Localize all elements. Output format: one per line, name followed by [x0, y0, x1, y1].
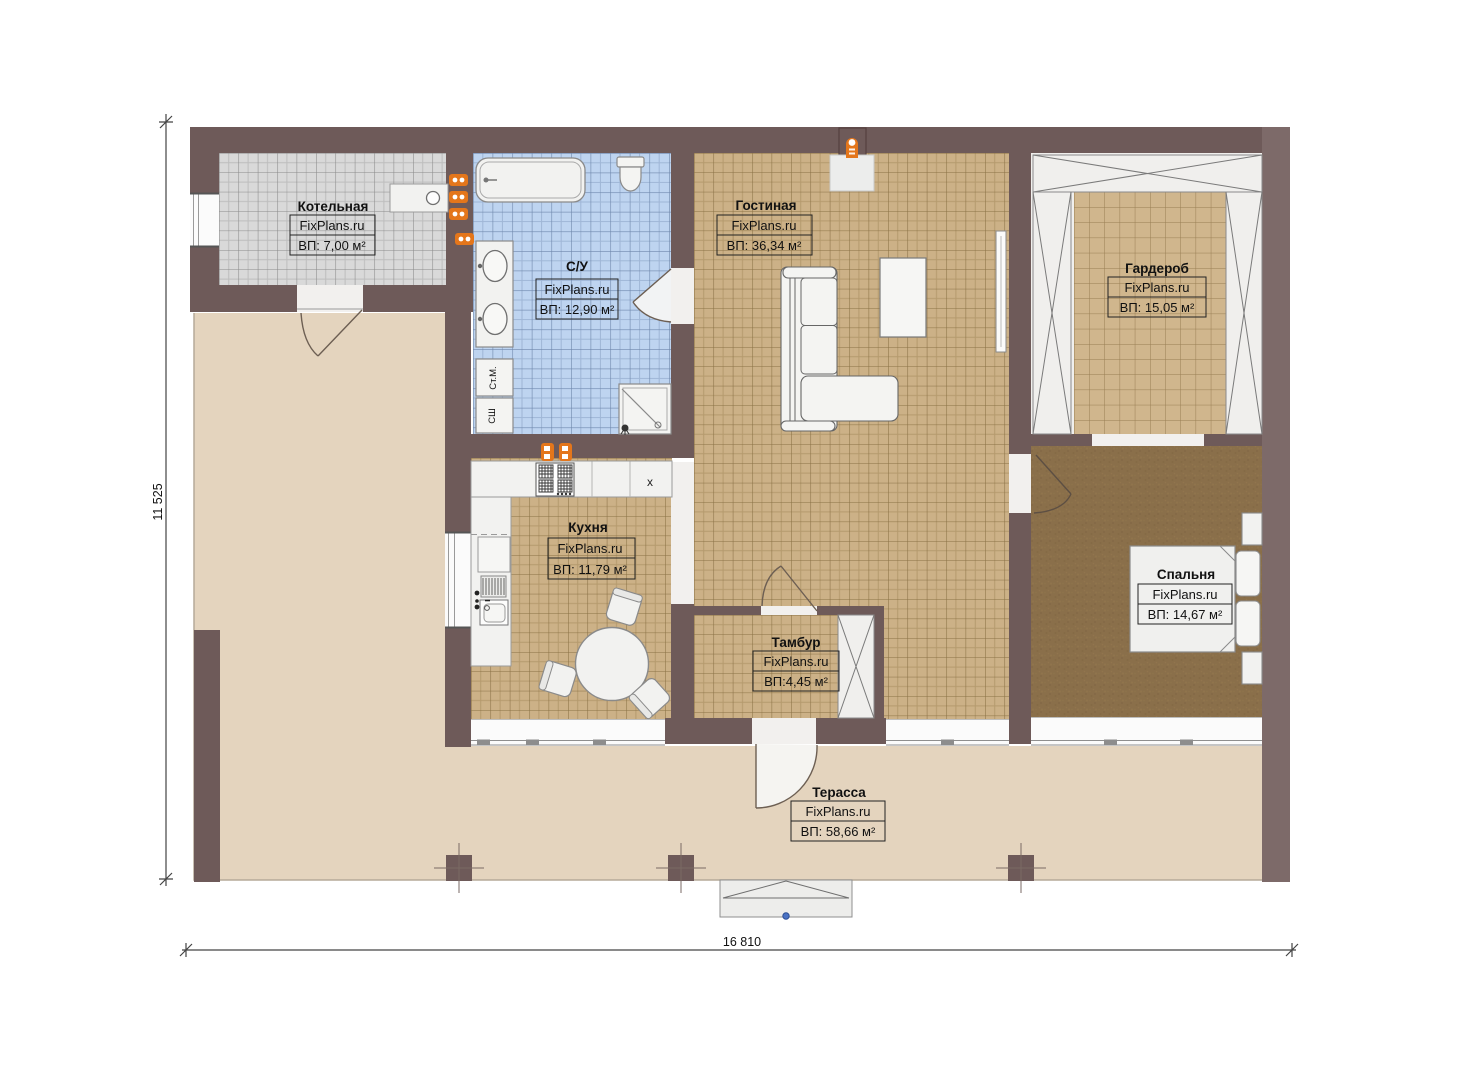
svg-text:ВП: 14,67 м²: ВП: 14,67 м²: [1148, 607, 1223, 622]
svg-text:11 525: 11 525: [151, 483, 165, 520]
svg-text:16 810: 16 810: [723, 935, 761, 949]
svg-text:х: х: [647, 475, 653, 489]
svg-text:FixPlans.ru: FixPlans.ru: [299, 218, 364, 233]
svg-text:Спальня: Спальня: [1157, 567, 1215, 582]
svg-text:ВП:4,45 м²: ВП:4,45 м²: [764, 674, 828, 689]
svg-text:Котельная: Котельная: [298, 199, 369, 214]
svg-text:ВП: 12,90 м²: ВП: 12,90 м²: [540, 302, 615, 317]
svg-text:Тамбур: Тамбур: [772, 635, 821, 650]
svg-text:ВП: 36,34 м²: ВП: 36,34 м²: [727, 238, 802, 253]
svg-text:ВП: 11,79 м²: ВП: 11,79 м²: [553, 562, 627, 577]
svg-text:С/У: С/У: [566, 259, 589, 274]
svg-text:Кухня: Кухня: [568, 520, 607, 535]
svg-text:FixPlans.ru: FixPlans.ru: [805, 804, 870, 819]
svg-text:Терасса: Терасса: [812, 785, 866, 800]
svg-text:СШ: СШ: [487, 408, 498, 424]
svg-text:FixPlans.ru: FixPlans.ru: [544, 282, 609, 297]
svg-text:FixPlans.ru: FixPlans.ru: [763, 654, 828, 669]
svg-text:FixPlans.ru: FixPlans.ru: [557, 541, 622, 556]
svg-text:FixPlans.ru: FixPlans.ru: [731, 218, 796, 233]
svg-text:FixPlans.ru: FixPlans.ru: [1152, 587, 1217, 602]
svg-text:ВП: 15,05 м²: ВП: 15,05 м²: [1120, 300, 1195, 315]
svg-text:ВП: 7,00 м²: ВП: 7,00 м²: [298, 238, 366, 253]
svg-text:FixPlans.ru: FixPlans.ru: [1124, 280, 1189, 295]
svg-text:Гостиная: Гостиная: [735, 198, 796, 213]
svg-text:Гардероб: Гардероб: [1125, 261, 1189, 276]
svg-text:Ст.М.: Ст.М.: [488, 366, 499, 389]
svg-text:ВП: 58,66 м²: ВП: 58,66 м²: [801, 824, 876, 839]
